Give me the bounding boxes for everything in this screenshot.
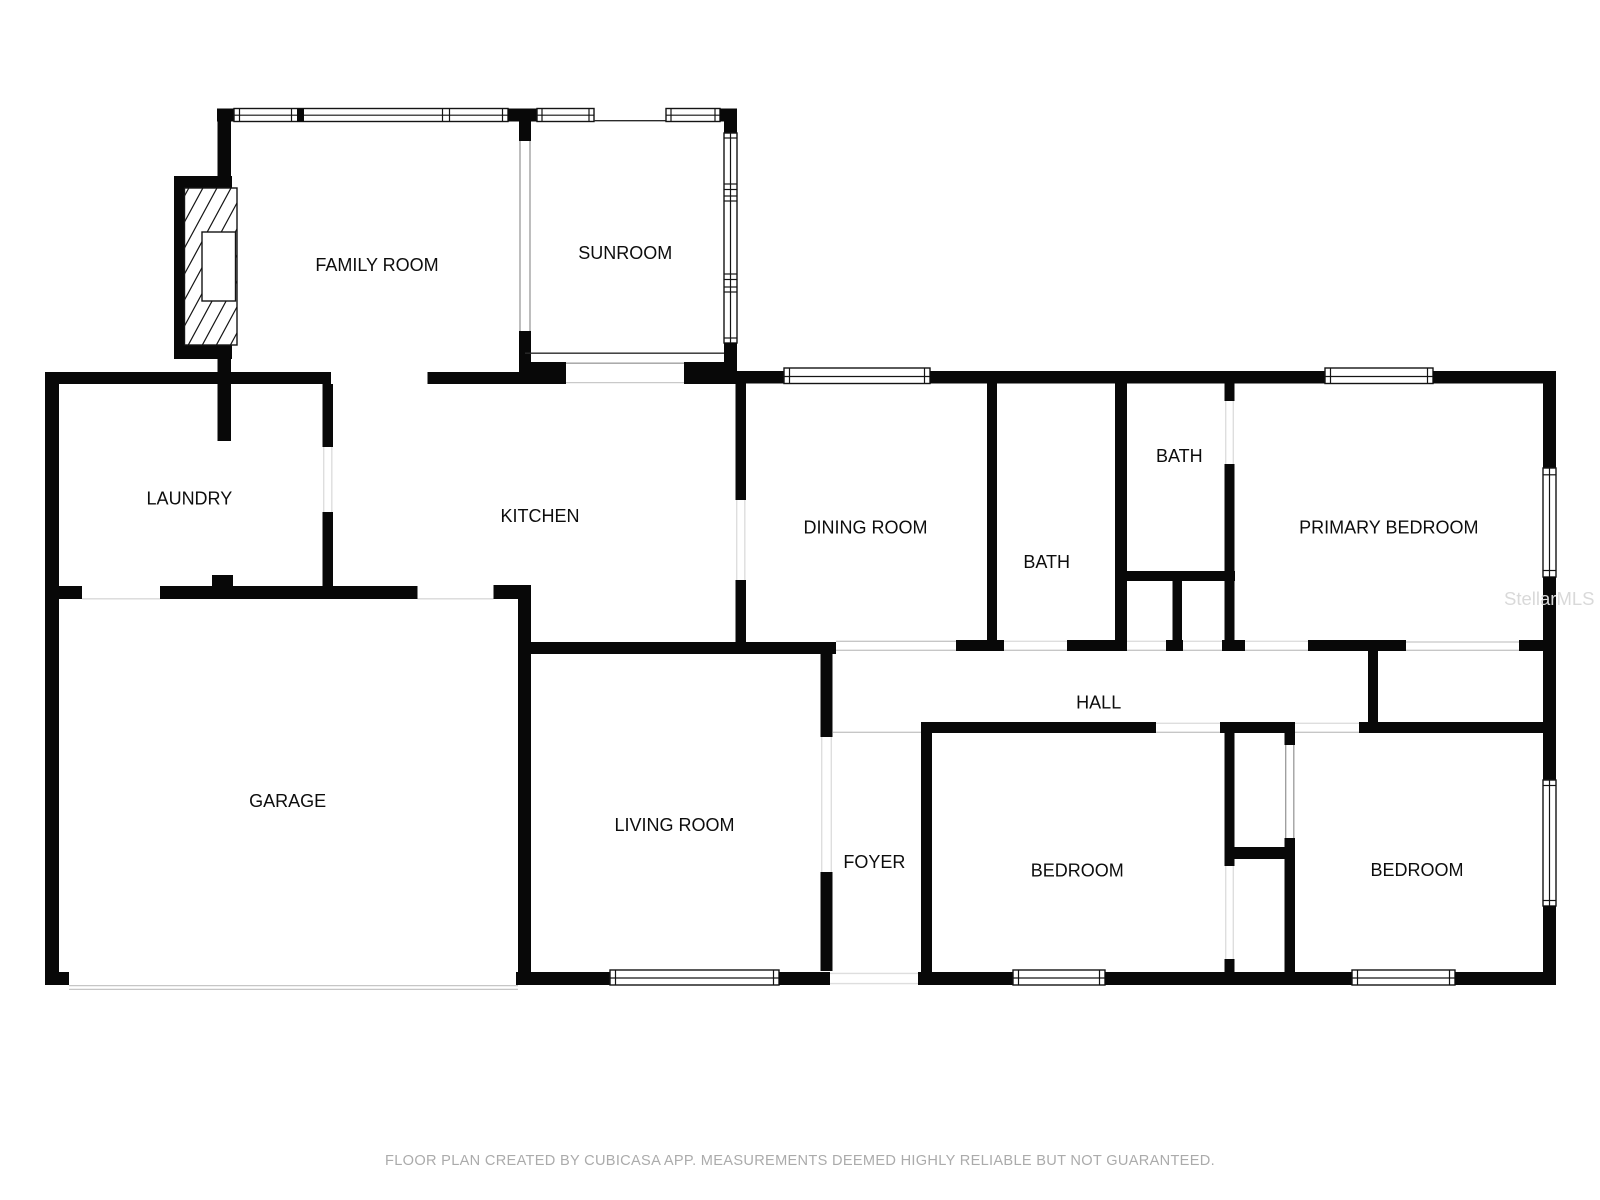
svg-text:FOYER: FOYER — [843, 852, 905, 872]
svg-text:BEDROOM: BEDROOM — [1370, 860, 1463, 880]
svg-text:StellarMLS: StellarMLS — [1504, 588, 1594, 609]
svg-text:HALL: HALL — [1076, 692, 1121, 712]
svg-text:GARAGE: GARAGE — [249, 791, 326, 811]
svg-text:KITCHEN: KITCHEN — [500, 506, 579, 526]
svg-text:PRIMARY BEDROOM: PRIMARY BEDROOM — [1299, 518, 1478, 538]
svg-text:FAMILY ROOM: FAMILY ROOM — [315, 255, 438, 275]
svg-text:LAUNDRY: LAUNDRY — [147, 489, 233, 509]
svg-text:BATH: BATH — [1156, 446, 1203, 466]
svg-text:FLOOR PLAN CREATED BY CUBICASA: FLOOR PLAN CREATED BY CUBICASA APP. MEAS… — [385, 1153, 1215, 1169]
svg-text:LIVING ROOM: LIVING ROOM — [614, 815, 734, 835]
svg-text:BATH: BATH — [1023, 552, 1070, 572]
svg-text:BEDROOM: BEDROOM — [1031, 861, 1124, 881]
svg-text:SUNROOM: SUNROOM — [578, 243, 672, 263]
svg-text:DINING ROOM: DINING ROOM — [804, 518, 928, 538]
